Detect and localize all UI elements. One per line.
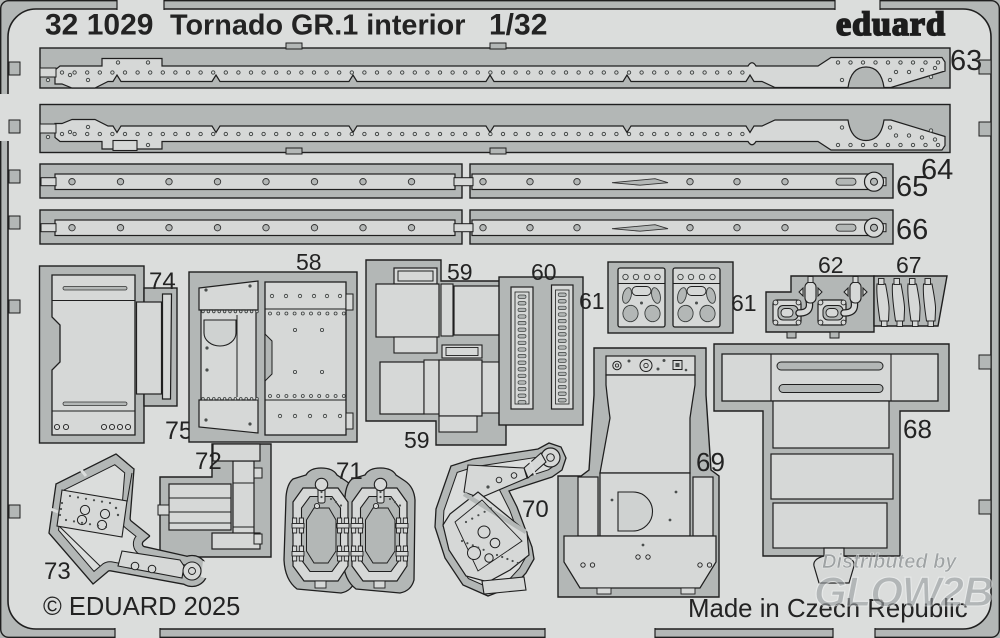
svg-text:61: 61: [579, 288, 605, 314]
svg-text:eduard: eduard: [836, 6, 946, 43]
svg-text:74: 74: [149, 268, 176, 295]
svg-text:1/32: 1/32: [489, 9, 547, 42]
svg-text:GLOW2B: GLOW2B: [814, 568, 992, 615]
svg-text:70: 70: [522, 496, 549, 523]
svg-text:63: 63: [950, 45, 982, 77]
svg-text:68: 68: [903, 414, 932, 444]
svg-text:65: 65: [896, 171, 928, 203]
svg-text:69: 69: [696, 447, 725, 477]
svg-text:61: 61: [731, 290, 757, 316]
svg-text:32 1029: 32 1029: [45, 9, 153, 42]
svg-text:72: 72: [195, 448, 222, 475]
svg-text:Tornado GR.1 interior: Tornado GR.1 interior: [170, 10, 465, 42]
svg-text:59: 59: [447, 259, 473, 285]
svg-text:59: 59: [404, 427, 430, 453]
svg-text:73: 73: [44, 558, 71, 585]
svg-text:71: 71: [336, 458, 363, 485]
svg-text:© EDUARD 2025: © EDUARD 2025: [43, 593, 240, 621]
svg-text:66: 66: [896, 214, 928, 246]
svg-text:60: 60: [531, 259, 557, 285]
svg-text:67: 67: [896, 252, 922, 278]
svg-text:62: 62: [818, 252, 844, 278]
svg-text:58: 58: [296, 249, 322, 275]
